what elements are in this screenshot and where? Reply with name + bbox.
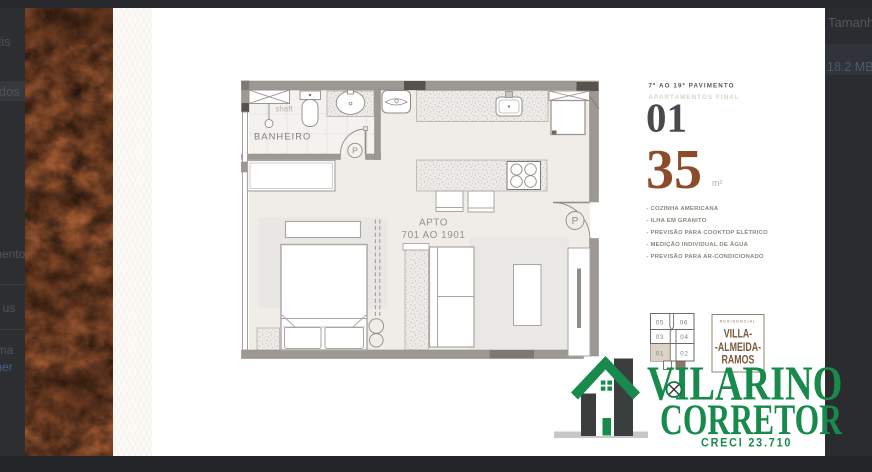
svg-text:idos: idos [0, 84, 20, 99]
svg-text:P: P [352, 146, 358, 156]
svg-text:701 AO 1901: 701 AO 1901 [402, 230, 466, 241]
svg-text:- PREVISÃO PARA COOKTOP ELÉTRI: - PREVISÃO PARA COOKTOP ELÉTRICO [647, 228, 769, 236]
svg-text:- PREVISÃO PARA AR-CONDICIONAD: - PREVISÃO PARA AR-CONDICIONADO [647, 253, 764, 260]
svg-text:mento: mento [0, 247, 26, 261]
svg-text:01: 01 [646, 95, 687, 141]
svg-text:- MEDIÇÃO INDIVIDUAL DE ÁGUA: - MEDIÇÃO INDIVIDUAL DE ÁGUA [647, 241, 749, 248]
svg-text:03: 03 [656, 334, 664, 341]
svg-text:mer: mer [0, 360, 13, 374]
svg-text:- COZINHA AMERICANA: - COZINHA AMERICANA [647, 206, 719, 212]
svg-text:m²: m² [712, 178, 723, 188]
svg-text:05: 05 [656, 320, 664, 327]
svg-text:06: 06 [680, 320, 688, 327]
svg-text:CRECI 23.710: CRECI 23.710 [701, 437, 792, 450]
svg-text:BANHEIRO: BANHEIRO [254, 132, 311, 142]
svg-text:RESIDENCIAL: RESIDENCIAL [720, 320, 757, 324]
svg-text:04: 04 [680, 334, 688, 341]
svg-text:7º AO 19º PAVIMENTO: 7º AO 19º PAVIMENTO [649, 82, 735, 89]
svg-text:VILLA-: VILLA- [724, 327, 753, 341]
svg-text:35: 35 [646, 139, 702, 201]
svg-text:/ ma: / ma [0, 343, 14, 357]
svg-text:shaft: shaft [275, 105, 293, 114]
svg-text:P: P [572, 216, 579, 227]
svg-text:al us: al us [0, 301, 15, 315]
svg-text:Tamanho: Tamanho [828, 15, 872, 30]
svg-text:dis: dis [0, 34, 11, 49]
svg-text:18.2 MB: 18.2 MB [827, 60, 872, 74]
svg-text:APTO: APTO [419, 218, 448, 229]
svg-text:- ILHA EM GRANITO: - ILHA EM GRANITO [647, 218, 707, 224]
